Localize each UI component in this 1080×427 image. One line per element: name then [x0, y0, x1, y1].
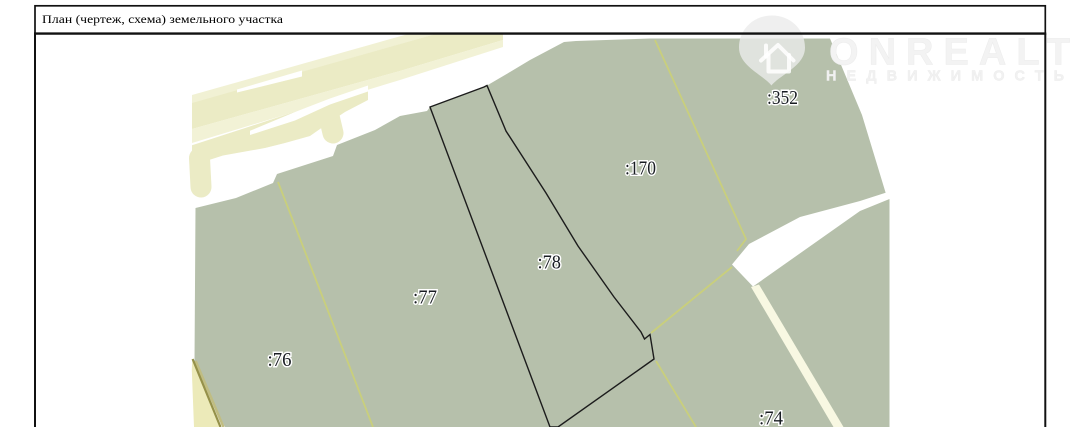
svg-text:План (чертеж, схема) земельног: План (чертеж, схема) земельного участка: [42, 12, 284, 26]
svg-text::76: :76: [268, 349, 292, 371]
svg-text::74: :74: [759, 408, 783, 427]
svg-text::78: :78: [538, 252, 562, 274]
svg-text::352: :352: [767, 87, 798, 109]
svg-text::77: :77: [413, 287, 437, 309]
svg-text::170: :170: [625, 158, 656, 180]
